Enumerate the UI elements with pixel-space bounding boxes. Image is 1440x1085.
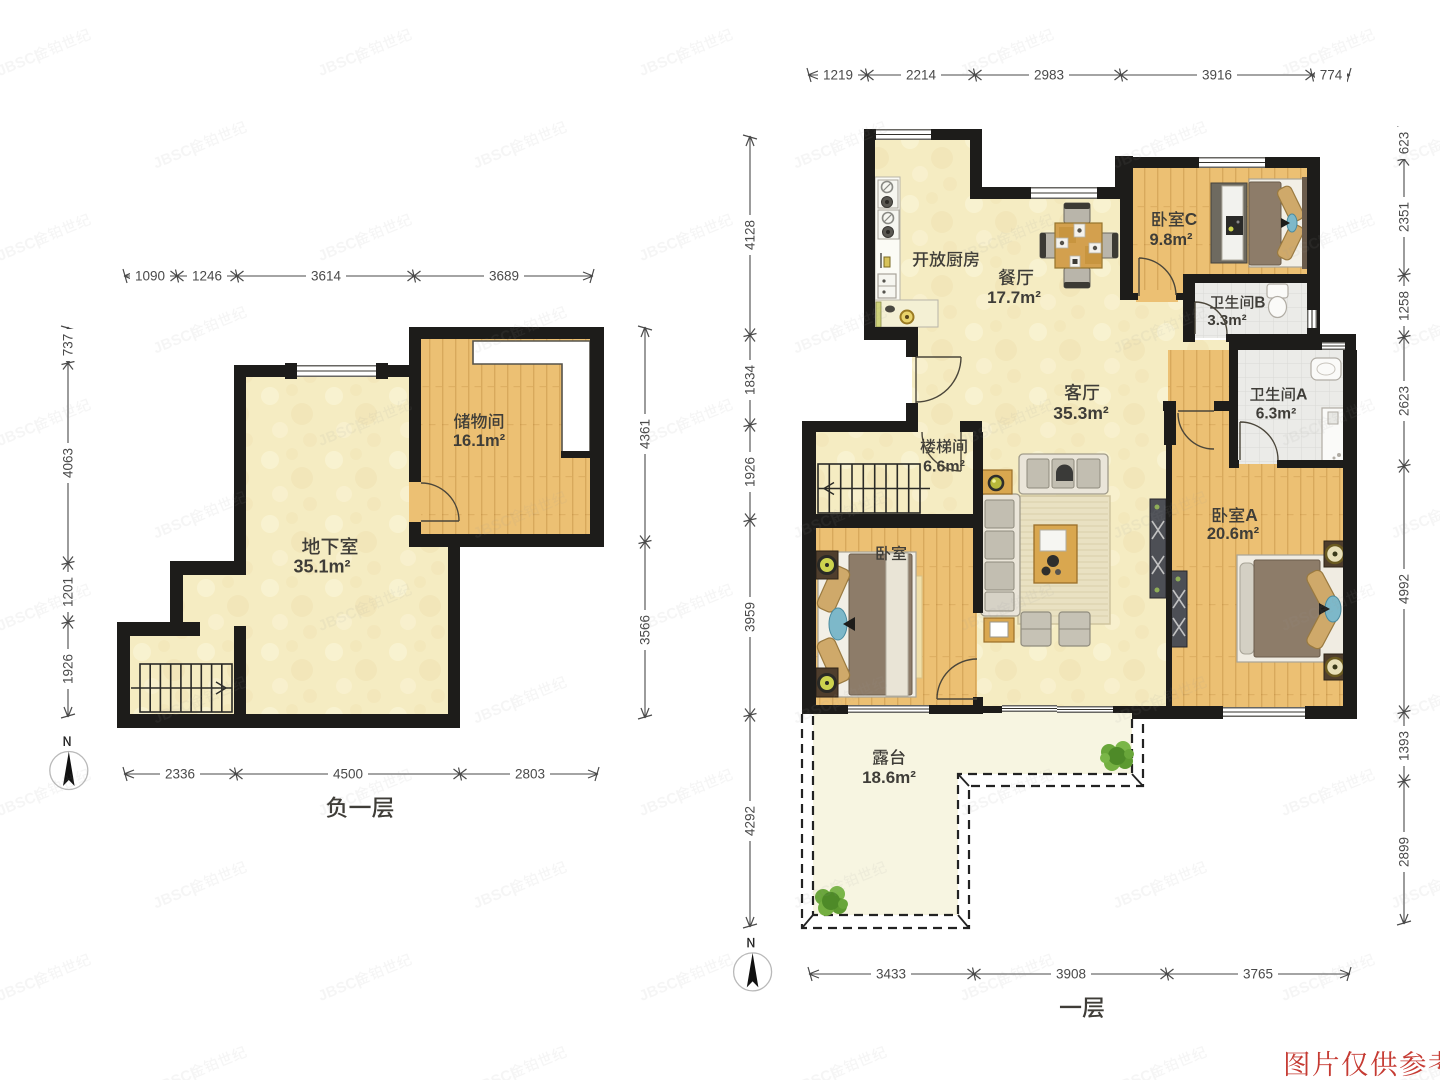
svg-text:6.3m²: 6.3m² [1256,405,1297,422]
svg-text:1258: 1258 [1397,291,1412,321]
svg-text:1834: 1834 [743,364,758,395]
svg-text:2983: 2983 [1034,68,1064,83]
svg-text:JBSC|: JBSC| [791,325,838,357]
svg-text:3614: 3614 [311,269,342,284]
svg-text:1926: 1926 [743,457,758,487]
svg-text:4128: 4128 [743,220,758,250]
svg-text:JBSC|: JBSC| [471,1065,518,1080]
svg-text:JBSC|: JBSC| [1111,1065,1158,1080]
svg-text:1219: 1219 [823,68,853,83]
svg-text:4063: 4063 [61,448,76,478]
svg-text:JBSC|: JBSC| [1389,1065,1436,1080]
svg-text:JBSC|: JBSC| [316,972,363,1004]
svg-text:3765: 3765 [1243,967,1273,982]
svg-text:1246: 1246 [192,269,222,284]
svg-text:JBSC|: JBSC| [637,602,684,634]
svg-text:JBSC|: JBSC| [1389,510,1436,542]
svg-text:JBSC|: JBSC| [1279,787,1326,819]
svg-text:JBSC|: JBSC| [637,972,684,1004]
svg-text:JBSC|: JBSC| [958,972,1005,1004]
svg-text:17.7m²: 17.7m² [987,288,1041,307]
svg-text:3433: 3433 [876,967,906,982]
svg-text:JBSC|: JBSC| [1279,972,1326,1004]
svg-text:JBSC|: JBSC| [316,47,363,79]
svg-text:B: B [1254,294,1265,311]
svg-text:JBSC|: JBSC| [1389,880,1436,912]
svg-text:737: 737 [61,334,76,357]
svg-text:JBSC|: JBSC| [151,325,198,357]
svg-text:A: A [1296,387,1307,404]
svg-text:JBSC|: JBSC| [316,787,363,819]
svg-text:3916: 3916 [1202,68,1232,83]
svg-text:JBSC|: JBSC| [637,232,684,264]
svg-text:4292: 4292 [743,806,758,836]
svg-text:JBSC|: JBSC| [151,510,198,542]
svg-text:35.3m²: 35.3m² [1053,403,1109,423]
svg-text:2803: 2803 [515,767,545,782]
svg-text:1926: 1926 [61,654,76,684]
svg-text:9.8m²: 9.8m² [1149,231,1193,249]
svg-text:C: C [1185,209,1197,229]
svg-text:2899: 2899 [1397,837,1412,867]
svg-text:JBSC|: JBSC| [316,232,363,264]
svg-text:4500: 4500 [333,767,363,782]
svg-text:3908: 3908 [1056,967,1086,982]
svg-text:4992: 4992 [1397,574,1412,604]
svg-text:JBSC|: JBSC| [471,695,518,727]
svg-text:3689: 3689 [489,269,519,284]
svg-text:JBSC|: JBSC| [151,1065,198,1080]
svg-text:JBSC|: JBSC| [637,787,684,819]
svg-text:JBSC|: JBSC| [791,140,838,172]
svg-text:3.3m²: 3.3m² [1207,312,1246,329]
svg-text:2214: 2214 [906,68,937,83]
svg-text:JBSC|: JBSC| [151,140,198,172]
svg-text:2351: 2351 [1397,202,1412,232]
svg-text:JBSC|: JBSC| [151,880,198,912]
svg-text:JBSC|: JBSC| [471,140,518,172]
svg-text:3959: 3959 [743,602,758,632]
svg-text:A: A [1245,505,1258,525]
svg-text:1393: 1393 [1397,731,1412,761]
svg-text:18.6m²: 18.6m² [862,768,916,787]
svg-text:JBSC|: JBSC| [1389,325,1436,357]
svg-text:JBSC|: JBSC| [471,880,518,912]
svg-text:20.6m²: 20.6m² [1207,525,1260,543]
svg-text:2336: 2336 [165,767,195,782]
svg-text:1090: 1090 [135,269,165,284]
svg-text:JBSC|: JBSC| [1111,880,1158,912]
svg-text:JBSC|: JBSC| [1389,695,1436,727]
svg-text:16.1m²: 16.1m² [453,432,506,450]
svg-text:2623: 2623 [1397,386,1412,416]
svg-text:35.1m²: 35.1m² [293,556,350,576]
svg-text:JBSC|: JBSC| [958,787,1005,819]
svg-text:774: 774 [1320,68,1343,83]
svg-text:JBSC|: JBSC| [637,47,684,79]
svg-text:JBSC|: JBSC| [791,1065,838,1080]
